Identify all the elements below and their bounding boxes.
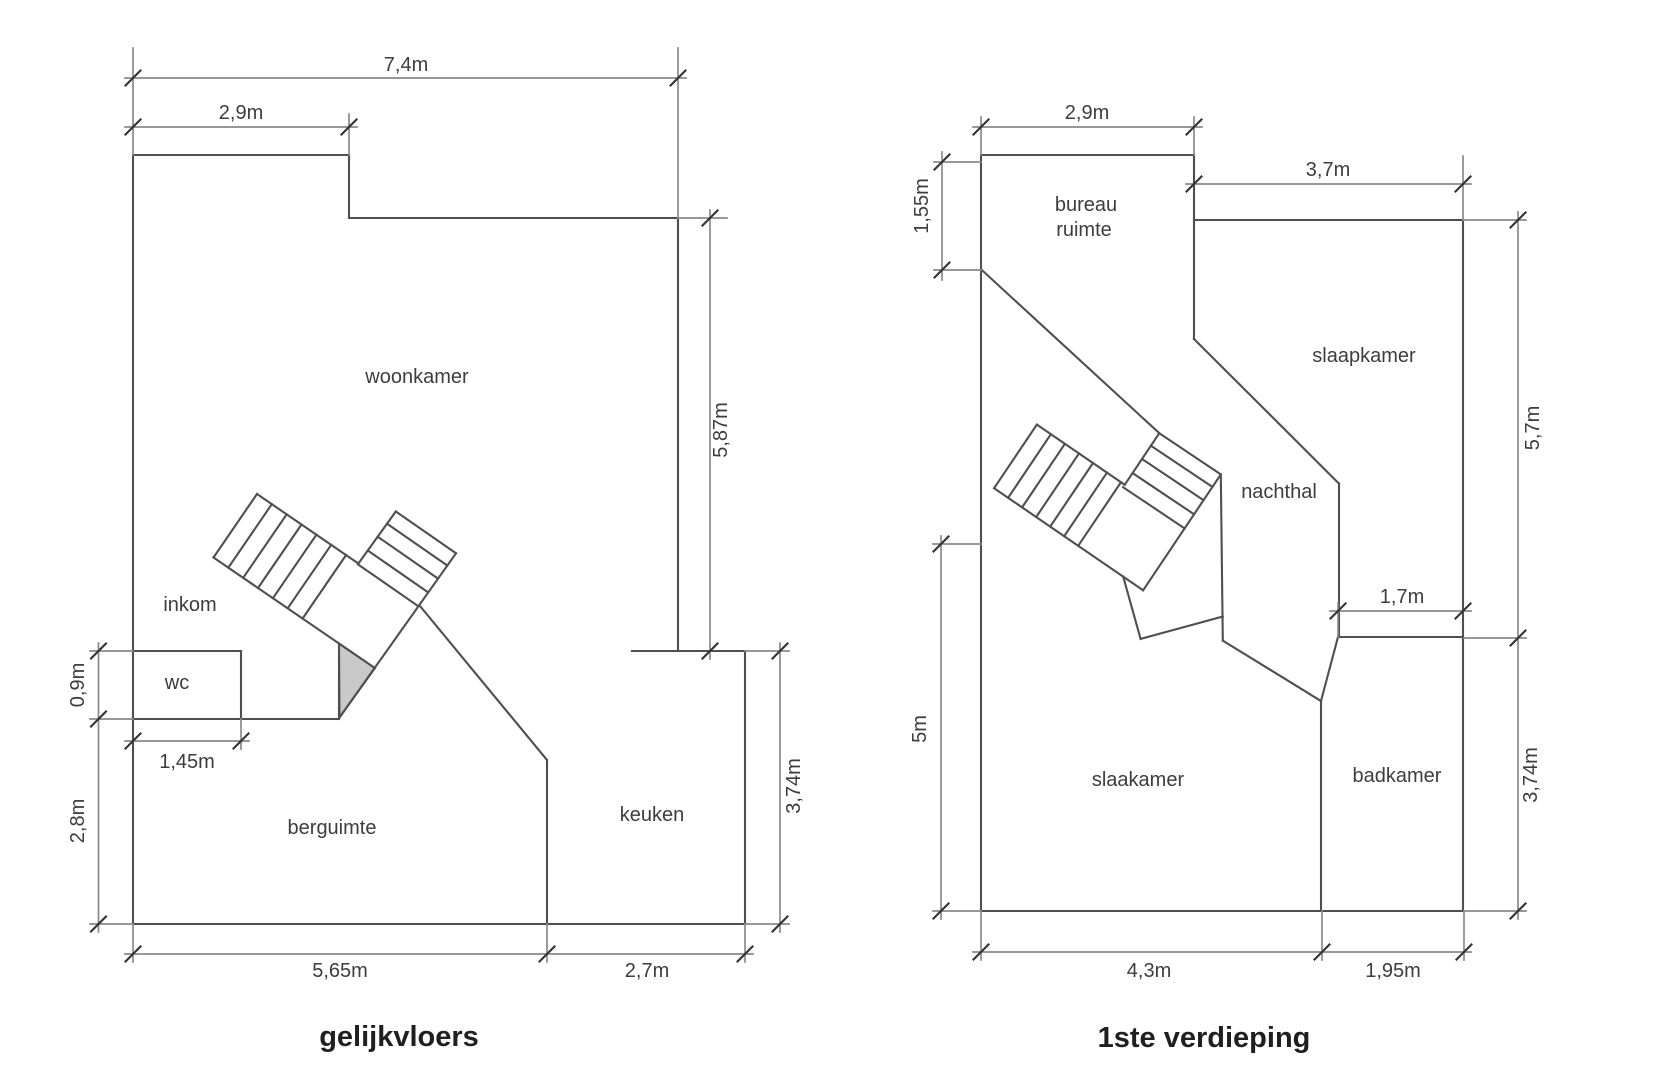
svg-text:3,7m: 3,7m — [1306, 159, 1350, 181]
svg-text:2,8m: 2,8m — [67, 799, 89, 843]
svg-text:5,87m: 5,87m — [710, 402, 732, 458]
svg-text:slaapkamer: slaapkamer — [1312, 345, 1416, 367]
svg-text:2,7m: 2,7m — [625, 960, 669, 982]
svg-text:0,9m: 0,9m — [67, 663, 89, 707]
svg-text:badkamer: badkamer — [1353, 765, 1442, 787]
svg-text:nachthal: nachthal — [1241, 481, 1317, 503]
svg-text:2,9m: 2,9m — [219, 102, 263, 124]
svg-text:1ste verdieping: 1ste verdieping — [1098, 1022, 1311, 1054]
svg-text:wc: wc — [164, 672, 189, 694]
svg-text:gelijkvloers: gelijkvloers — [319, 1021, 479, 1053]
svg-text:5,65m: 5,65m — [312, 960, 368, 982]
svg-text:2,9m: 2,9m — [1065, 102, 1109, 124]
svg-text:woonkamer: woonkamer — [364, 366, 469, 388]
svg-text:5m: 5m — [909, 715, 931, 743]
svg-text:5,7m: 5,7m — [1522, 406, 1544, 450]
svg-text:3,74m: 3,74m — [783, 758, 805, 814]
svg-text:7,4m: 7,4m — [384, 54, 428, 76]
svg-text:4,3m: 4,3m — [1127, 960, 1171, 982]
svg-text:bureau: bureau — [1055, 194, 1117, 216]
svg-text:slaakamer: slaakamer — [1092, 769, 1185, 791]
svg-text:1,45m: 1,45m — [159, 751, 215, 773]
svg-text:berguimte: berguimte — [288, 817, 377, 839]
svg-text:keuken: keuken — [620, 804, 685, 826]
svg-text:3,74m: 3,74m — [1520, 747, 1542, 803]
svg-text:ruimte: ruimte — [1056, 219, 1112, 241]
svg-text:1,95m: 1,95m — [1365, 960, 1421, 982]
svg-text:inkom: inkom — [163, 594, 216, 616]
svg-text:1,55m: 1,55m — [911, 178, 933, 234]
svg-text:1,7m: 1,7m — [1380, 586, 1424, 608]
